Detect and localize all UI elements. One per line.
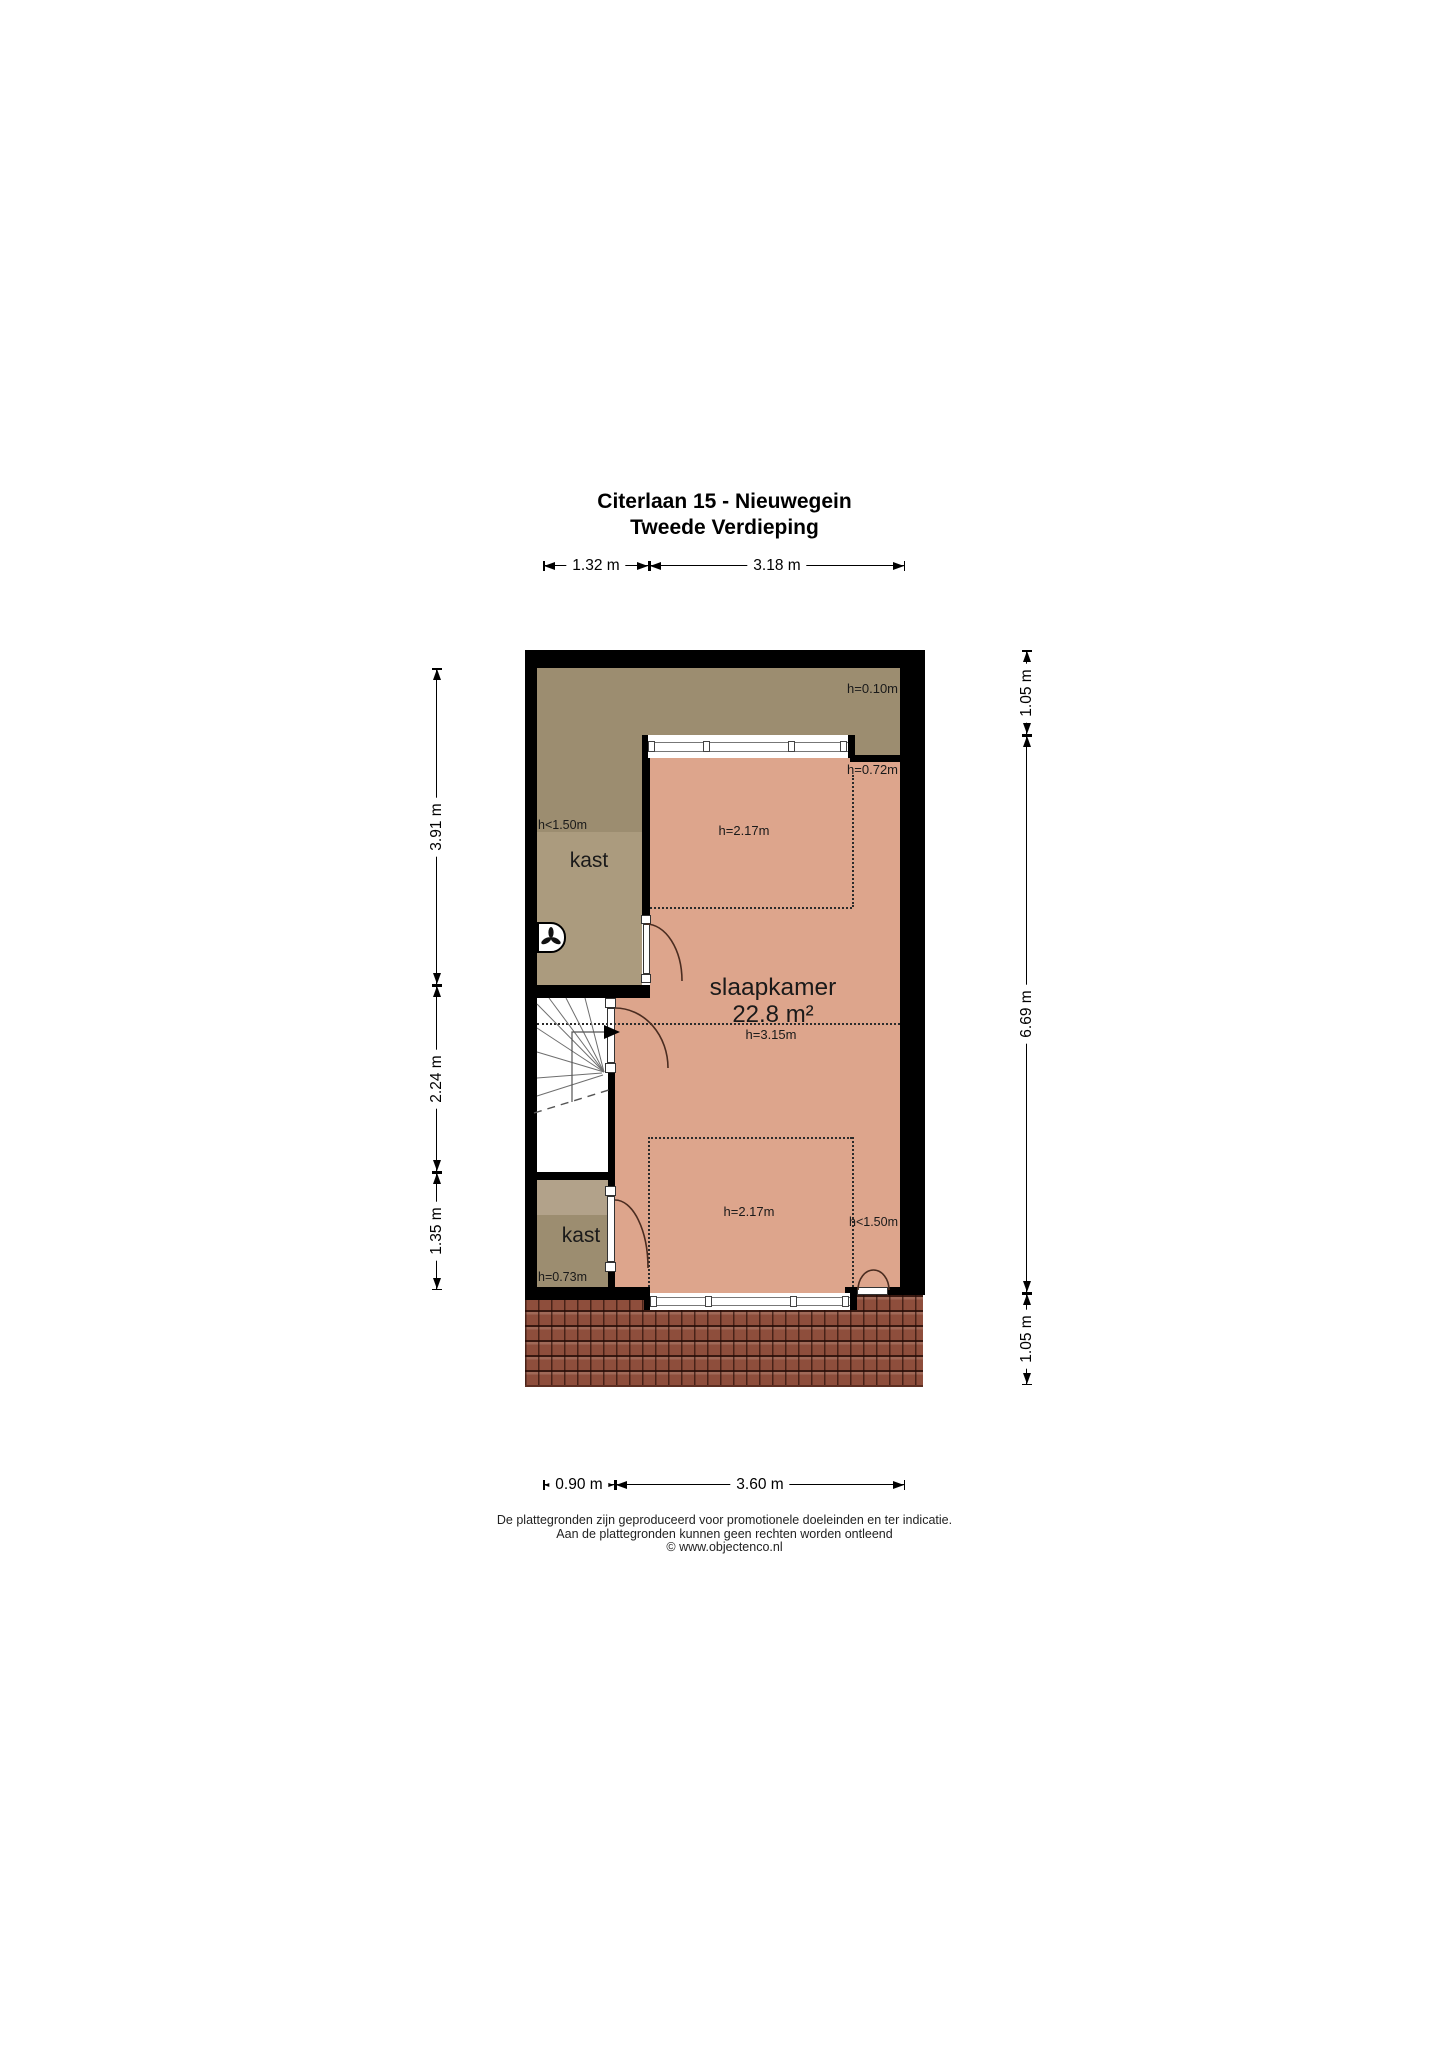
- wall-top: [525, 650, 925, 668]
- closet-bottom-upper-part: [537, 1180, 608, 1215]
- wall-closet-top-east: [642, 735, 650, 915]
- dim-label: 0.90 m: [549, 1476, 608, 1494]
- page-title: Citerlaan 15 - Nieuwegein Tweede Verdiep…: [0, 489, 1449, 541]
- ceiling-line: [852, 775, 854, 907]
- dim-label: 2.24 m: [428, 1049, 446, 1108]
- dim-right-1: 1.05 m: [1019, 650, 1035, 735]
- dim-label: 1.05 m: [1018, 1309, 1036, 1368]
- closet-top-label: kast: [549, 849, 629, 873]
- door-closet-top: [643, 924, 650, 974]
- bedroom-name-label: slaapkamer: [673, 974, 873, 1002]
- wall-left: [525, 650, 537, 1300]
- dim-bottom-left: 0.90 m: [543, 1477, 615, 1493]
- dim-bottom-right: 3.60 m: [615, 1477, 905, 1493]
- door-stairs: [607, 1008, 615, 1063]
- window-frame: [650, 1297, 850, 1306]
- window-mullion: [703, 741, 710, 752]
- dim-top-left: 1.32 m: [543, 558, 649, 574]
- bedroom-area-label: 22.8 m²: [673, 1001, 873, 1029]
- door-hinge: [605, 998, 616, 1008]
- wall-closet-top-south: [533, 985, 650, 998]
- ceiling-line: [648, 1137, 852, 1139]
- dim-right-3: 1.05 m: [1019, 1293, 1035, 1385]
- ventilation-unit: [537, 922, 566, 953]
- disclaimer: De plattegronden zijn geproduceerd voor …: [0, 1514, 1449, 1555]
- ceiling-line: [650, 907, 852, 909]
- wall-closet-bottom-east-lower: [608, 1272, 615, 1287]
- window-mullion: [648, 741, 655, 752]
- dim-label: 3.60 m: [730, 1476, 789, 1494]
- dim-label: 6.69 m: [1018, 984, 1036, 1043]
- wall-hatch-right-stub: [888, 1287, 900, 1295]
- dim-label: 1.05 m: [1018, 663, 1036, 722]
- attic-strip: [537, 668, 900, 735]
- height-label-lower-zone: h=2.17m: [699, 1204, 799, 1219]
- height-label-top-right: h=0.72m: [798, 762, 898, 777]
- door-roof-hatch: [857, 1287, 888, 1295]
- height-label-upper-zone: h=2.17m: [694, 823, 794, 838]
- dim-left-3: 1.35 m: [429, 1172, 445, 1290]
- height-label-right-lower: h<1.50m: [849, 1215, 898, 1229]
- window-mullion: [650, 1296, 657, 1307]
- window-mullion: [790, 1296, 797, 1307]
- dim-label: 3.91 m: [428, 797, 446, 856]
- window-mullion: [840, 741, 847, 752]
- dim-left-2: 2.24 m: [429, 985, 445, 1172]
- disclaimer-line-2: Aan de plattegronden kunnen geen rechten…: [0, 1528, 1449, 1542]
- door-hinge: [605, 1063, 616, 1073]
- address-title: Citerlaan 15 - Nieuwegein: [0, 489, 1449, 515]
- wall-right: [900, 650, 925, 1295]
- window-mullion: [788, 741, 795, 752]
- floor-subtitle: Tweede Verdieping: [0, 515, 1449, 541]
- wall-stairs-east: [608, 1073, 615, 1172]
- window-mullion: [842, 1296, 849, 1307]
- closet-bottom-label: kast: [541, 1224, 621, 1248]
- window-frame: [648, 742, 848, 752]
- door-hinge: [641, 974, 651, 983]
- wall-south-window-right-stub: [850, 1293, 857, 1310]
- disclaimer-line-1: De plattegronden zijn geproduceerd voor …: [0, 1514, 1449, 1528]
- window-north: [648, 735, 848, 758]
- ceiling-line: [852, 1137, 854, 1287]
- door-hinge: [605, 1186, 616, 1196]
- dim-label: 3.18 m: [747, 557, 806, 575]
- attic-strip-right-column: [852, 735, 900, 755]
- window-south: [650, 1293, 850, 1310]
- door-hinge: [605, 1262, 616, 1272]
- height-label-attic-strip: h=0.10m: [798, 681, 898, 696]
- dim-left-1: 3.91 m: [429, 668, 445, 985]
- dim-label: 1.35 m: [428, 1201, 446, 1260]
- wall-stairwell-south: [533, 1172, 615, 1180]
- dim-label: 1.32 m: [566, 557, 625, 575]
- copyright-line: © www.objectenco.nl: [0, 1541, 1449, 1555]
- ceiling-line: [648, 1137, 650, 1287]
- height-label-closet-top: h<1.50m: [538, 818, 587, 832]
- dim-top-right: 3.18 m: [649, 558, 905, 574]
- door-hinge: [641, 915, 651, 924]
- wall-bottom-left: [525, 1287, 650, 1300]
- floorplan-page: Citerlaan 15 - Nieuwegein Tweede Verdiep…: [0, 0, 1449, 2048]
- dim-right-2: 6.69 m: [1019, 735, 1035, 1293]
- height-label-closet-bottom: h=0.73m: [538, 1270, 587, 1284]
- window-mullion: [705, 1296, 712, 1307]
- ridge-height-label: h=3.15m: [671, 1027, 871, 1042]
- wall-right-column-south: [850, 755, 900, 762]
